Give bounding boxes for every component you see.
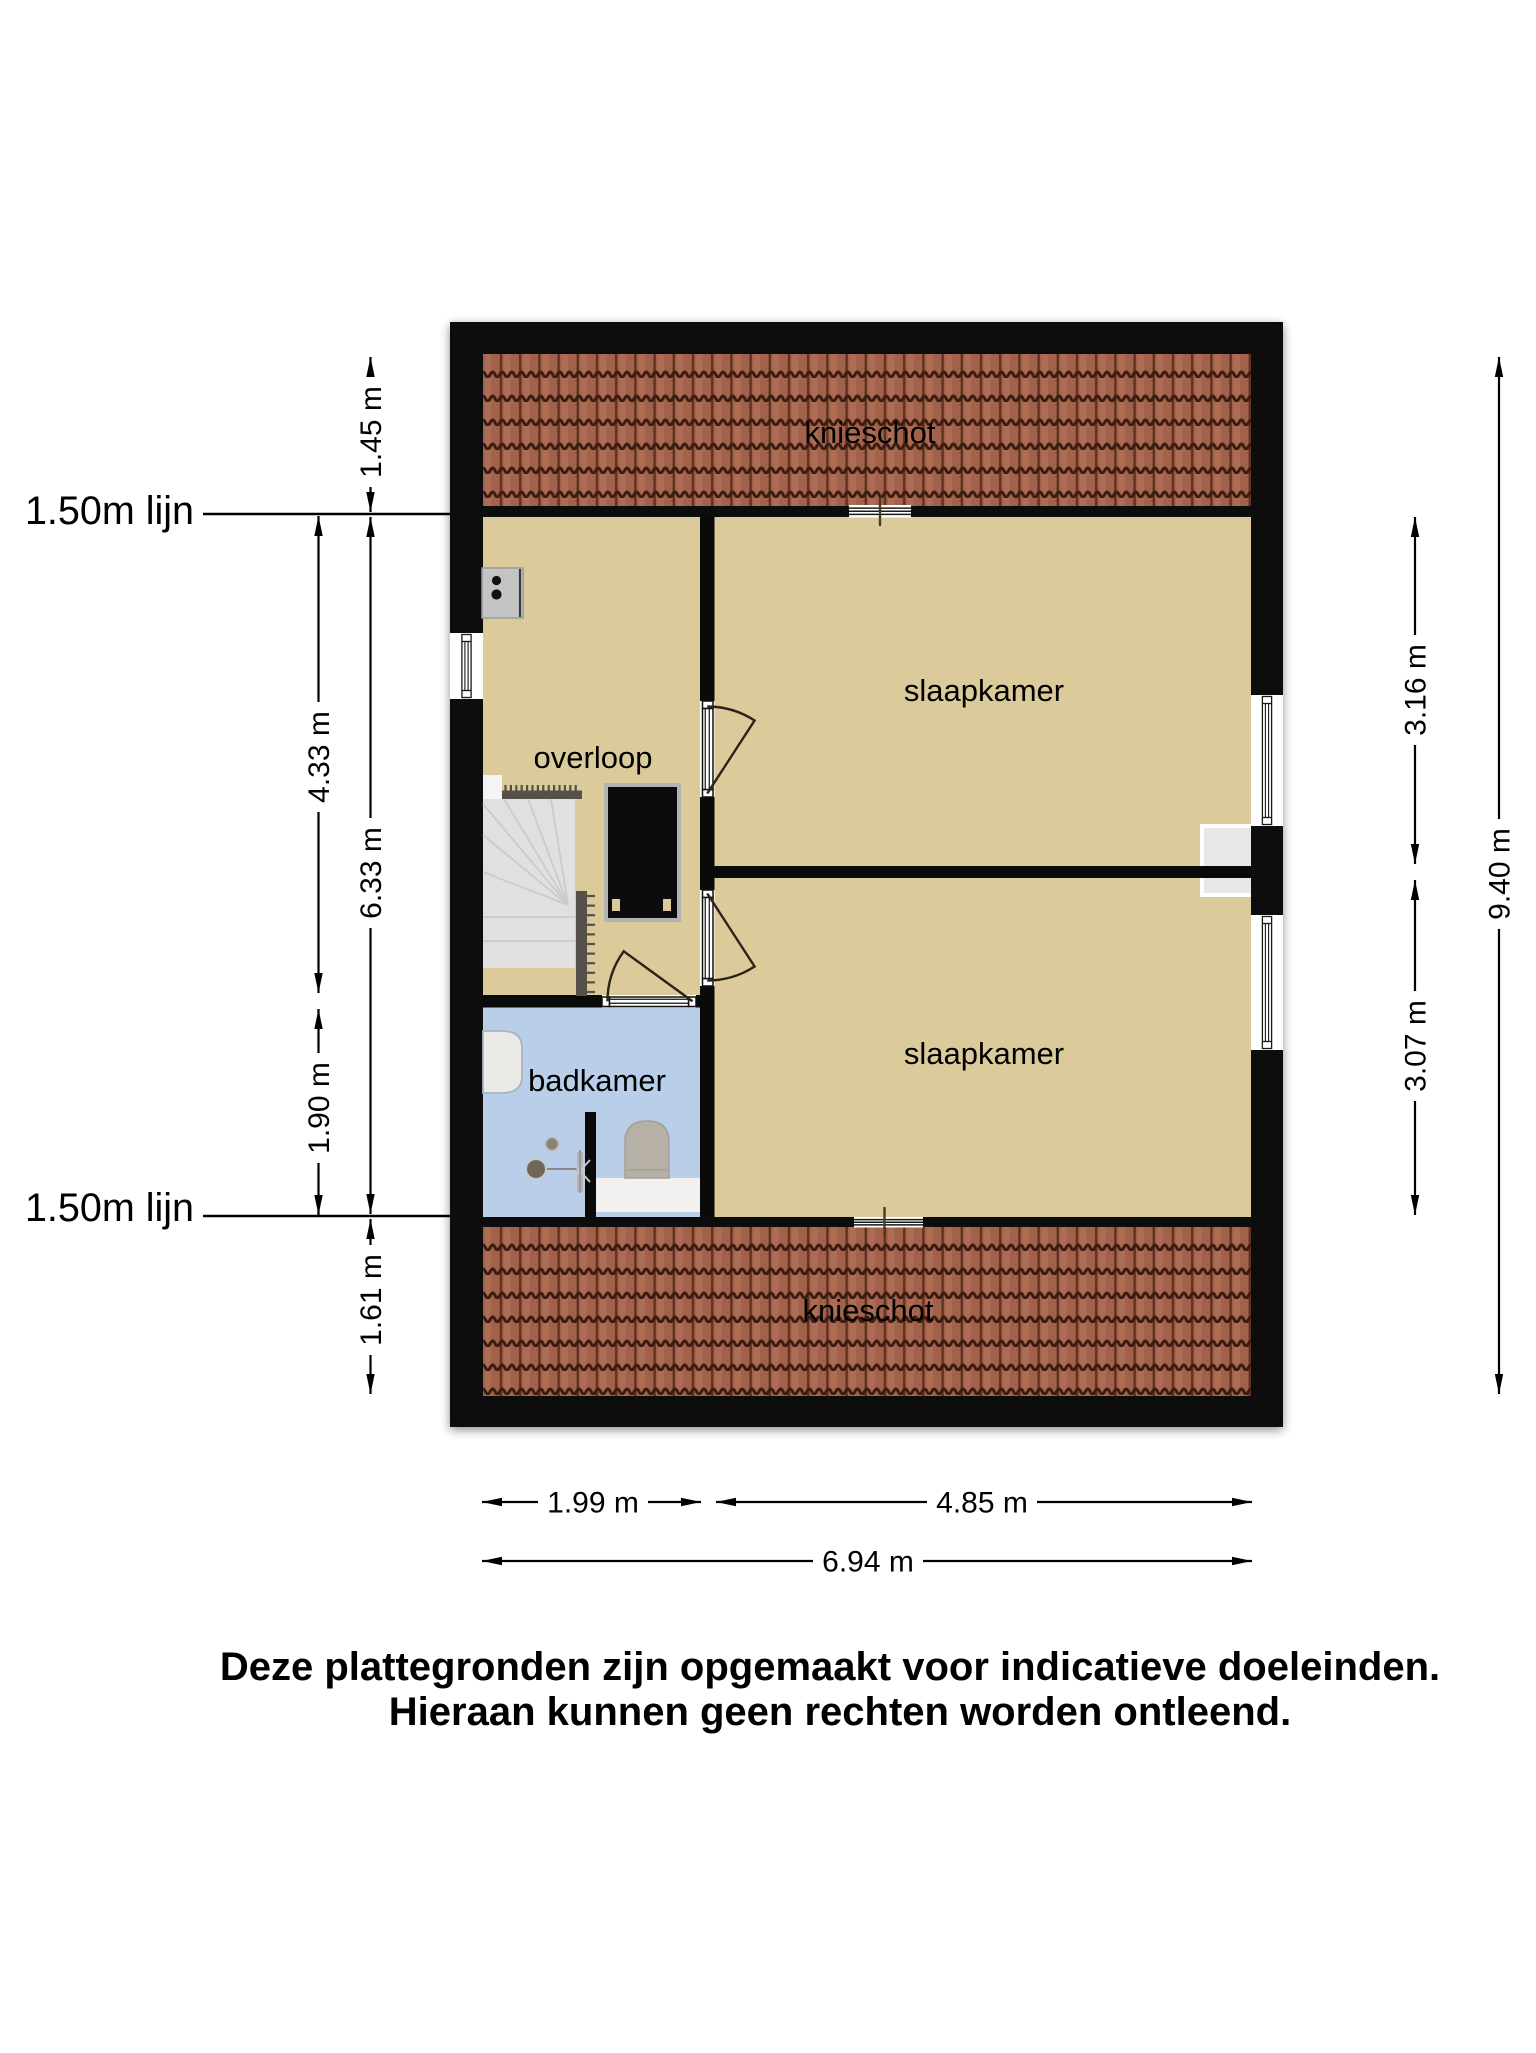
svg-text:knieschot: knieschot	[803, 1293, 934, 1328]
svg-text:overloop: overloop	[534, 740, 653, 775]
svg-text:1.50m lijn: 1.50m lijn	[25, 489, 194, 533]
svg-text:3.07 m: 3.07 m	[1400, 1000, 1433, 1092]
svg-text:Hieraan kunnen geen rechten wo: Hieraan kunnen geen rechten worden ontle…	[389, 1690, 1291, 1734]
svg-text:6.94 m: 6.94 m	[822, 1546, 914, 1579]
svg-text:1.45 m: 1.45 m	[355, 386, 388, 478]
svg-text:Deze plattegronden zijn opgema: Deze plattegronden zijn opgemaakt voor i…	[220, 1645, 1440, 1689]
svg-text:6.33 m: 6.33 m	[355, 827, 388, 919]
svg-text:1.99 m: 1.99 m	[547, 1487, 639, 1520]
svg-text:4.85 m: 4.85 m	[936, 1487, 1028, 1520]
svg-text:4.33 m: 4.33 m	[303, 711, 336, 803]
svg-text:slaapkamer: slaapkamer	[904, 673, 1064, 708]
svg-text:1.90 m: 1.90 m	[303, 1062, 336, 1154]
svg-text:badkamer: badkamer	[528, 1063, 666, 1098]
svg-text:3.16 m: 3.16 m	[1400, 644, 1433, 736]
svg-text:9.40 m: 9.40 m	[1484, 828, 1517, 920]
svg-text:knieschot: knieschot	[805, 415, 936, 450]
svg-text:1.50m lijn: 1.50m lijn	[25, 1186, 194, 1230]
svg-text:1.61 m: 1.61 m	[355, 1254, 388, 1346]
svg-text:slaapkamer: slaapkamer	[904, 1036, 1064, 1071]
